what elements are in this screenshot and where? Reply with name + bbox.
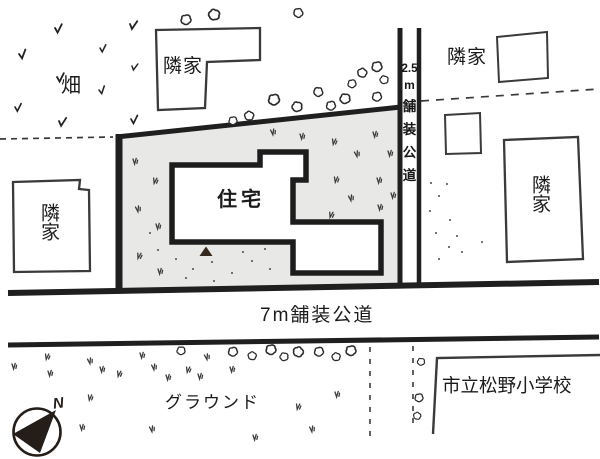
side-road-width: 2.5 xyxy=(402,63,418,75)
field-grass-marks xyxy=(15,20,138,126)
neighbor-right-label: 隣家 xyxy=(529,175,549,213)
neighbor-top-right-label: 隣家 xyxy=(447,48,487,68)
front-road-label: 7m舗装公道 xyxy=(260,306,374,326)
bush-row-north xyxy=(181,7,389,124)
neighbor-top-label: 隣家 xyxy=(163,57,203,77)
compass xyxy=(13,409,61,456)
front-road-bottom-line xyxy=(8,337,599,345)
outbuilding-square xyxy=(445,113,481,154)
school-label: 市立松野小学校 xyxy=(442,376,572,395)
north-label: N xyxy=(52,394,65,412)
neighbor-building-top-right xyxy=(497,32,548,82)
dashed-boundary-left xyxy=(0,137,113,139)
neighbor-left-label: 隣家 xyxy=(38,203,58,241)
ground-label: グラウンド xyxy=(165,394,260,412)
site-plan: 畑 隣家 隣家 隣家 隣家 住宅 2.5 m 舗 装 公 道 7m舗装公道 グラ… xyxy=(0,0,600,459)
side-road-label: 2.5 m 舗 装 公 道 xyxy=(398,63,421,184)
dashed-boundary-right xyxy=(421,89,599,101)
field-label: 畑 xyxy=(61,76,81,97)
house-label: 住宅 xyxy=(217,190,265,211)
